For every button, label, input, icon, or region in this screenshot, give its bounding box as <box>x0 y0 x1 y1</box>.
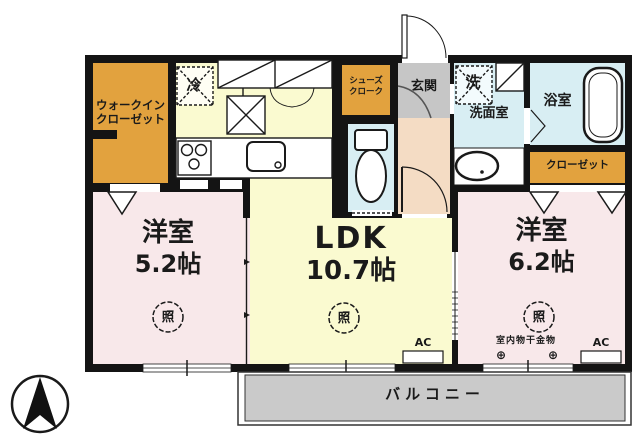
drying-hook-icon: ⊕ <box>496 348 506 362</box>
bathroom-label: 浴室 <box>530 93 585 111</box>
floorplan-canvas: ウォークイン クローゼット シューズ クローク 玄関 冷 洗 洗面室 浴室 クロ… <box>0 0 640 442</box>
ac-label-ldk: AC <box>403 336 443 350</box>
bedroom2-label: 洋室 6.2帖 <box>458 216 625 277</box>
range-hood-icon <box>227 88 265 134</box>
toilet-icon <box>355 130 387 202</box>
walkin-closet-label: ウォークイン クローゼット <box>93 98 168 127</box>
washroom-label: 洗面室 <box>454 106 524 122</box>
bedroom1-label: 洋室 5.2帖 <box>93 218 243 279</box>
bath-folding-door-icon <box>531 110 545 142</box>
balcony-label: バルコニー <box>238 385 632 404</box>
stove-icon <box>178 141 211 175</box>
indoor-drying-label: 室内物干金物 <box>478 336 574 347</box>
kitchen-cabinet-icon <box>218 60 332 88</box>
corner-shelf-icon <box>496 63 524 91</box>
ceiling-light-label: 照 <box>326 310 362 326</box>
ac-unit-ldk <box>403 351 443 363</box>
kitchen-sink-icon <box>247 142 285 171</box>
wic-door-mark <box>108 192 136 214</box>
ceiling-light-label: 照 <box>150 309 186 325</box>
closet-door-mark <box>598 192 626 213</box>
entrance-label: 玄関 <box>396 79 452 95</box>
entrance-door-leaf-icon <box>402 15 407 58</box>
vanity-sink-icon <box>454 148 524 185</box>
cabinet-door-arcs <box>270 88 314 107</box>
north-arrow-icon <box>12 376 68 432</box>
closet-label: クローゼット <box>530 159 625 172</box>
ac-unit-bedroom2 <box>581 351 621 363</box>
window-bedroom1 <box>143 360 231 376</box>
closet-door-mark <box>530 192 558 213</box>
ceiling-light-label: 照 <box>521 309 557 325</box>
washer-label: 洗 <box>456 73 490 92</box>
ldk-label: LDK 10.7帖 <box>250 222 452 288</box>
entrance-door-arc-icon <box>407 16 446 58</box>
drying-hook-icon: ⊕ <box>548 348 558 362</box>
bathtub-icon <box>584 68 622 142</box>
toilet-door-icon <box>352 210 392 216</box>
hall-door-arc-icon <box>402 167 447 212</box>
partition-bedroom1-ldk <box>243 218 250 364</box>
ac-label-bedroom2: AC <box>581 336 621 350</box>
shoes-cloak-label: シューズ クローク <box>342 76 390 97</box>
fridge-label: 冷 <box>176 76 212 95</box>
